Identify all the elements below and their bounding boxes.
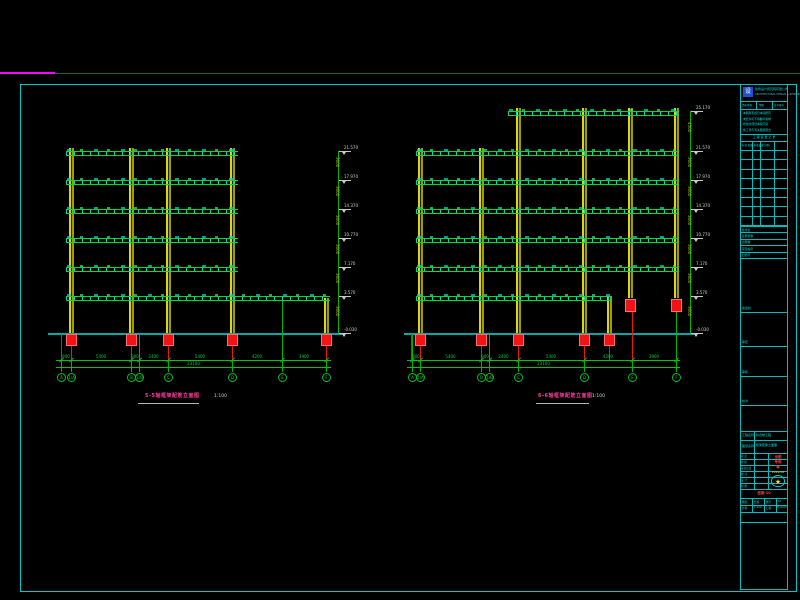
note-line: 修改时须经本院同意 [743,122,768,126]
approval-box-label: 审核 [742,370,748,374]
sheet-no-label: 图号 [766,500,771,504]
cert-number: 证书编号 [774,103,784,107]
note-line: 本图所有权归本院所有 [743,111,771,115]
scale-value: 1:100 [754,506,761,509]
scale-label: 比例 [742,506,747,510]
title-block-divider [764,498,765,512]
approval-box-label: 校对 [742,399,748,403]
project-name-value: 综合楼工程 [756,433,771,437]
title-block-divider [740,206,788,207]
title-block-divider [752,498,753,512]
sign-row-label: 项目编号 [742,247,753,251]
title-block-divider [740,159,788,160]
date-label: 日期 [766,506,771,510]
title-block-divider [740,376,788,377]
staff-row-label: 制 图 [741,484,747,488]
project-name-label: 工程名称 [742,433,754,437]
title-block-divider [740,141,788,142]
title-block-divider [740,109,788,110]
registration-seal-badge: ★ [771,475,785,487]
staff-row-label: 设 计 [741,478,747,482]
company-name-en: ARCHITECTURAL DESIGN & RESEARCH INSTITUT… [755,93,800,96]
title-block-divider [776,498,777,512]
title-block-divider [756,101,757,109]
staff-row-label: 专业负责 [741,466,751,470]
title-block-divider [740,440,788,441]
title-block-divider [740,150,788,151]
cert-grade: 甲级 [759,103,764,107]
cad-sheet-canvas: 9005400900240054004200390023100A1/AB1/BC… [0,0,800,600]
title-block-divider [772,101,773,109]
title-block-divider [740,216,788,217]
title-block-divider [740,346,788,347]
title-block-divider [740,312,788,313]
title-block-divider [740,512,788,513]
staff-row-label: 审 定 [741,454,747,458]
company-name: 建筑设计研究院有限公司 [755,87,788,91]
sign-row-label: 会签栏 [742,228,750,232]
sign-row-label: 归档号 [742,253,750,257]
note-line: 施工须与有关图纸配合 [743,128,771,132]
title-block-divider [740,169,788,170]
title-block-divider [740,489,788,490]
revision-table-title: 工 程 变 更 记 录 [753,135,776,139]
approval-box-label: 审定 [742,340,748,344]
staff-row-label: 校 对 [741,472,747,476]
title-block-divider [740,197,788,198]
sheet-type-label: 图别 [742,500,747,504]
sign-row-label: 注册师章 [742,234,753,238]
title-block-divider [760,141,761,226]
drawing-number-red: 结施-10 [757,491,770,496]
title-block-divider [740,225,788,226]
date-value: 2019.06 [776,506,787,509]
sheet-no-value: 10 [778,500,781,503]
sign-row-label: 出图章 [742,240,750,244]
revision-table-columns: 标记 处数 修改依据 日期 [742,143,769,147]
title-block-divider [740,178,788,179]
title-block-divider [740,522,788,523]
note-line: 未经许可不得翻印复制 [743,117,771,121]
stamp-date: 2019.06 [772,470,784,474]
title-block-divider [740,431,788,432]
approval-box-label: 会签栏 [742,306,751,310]
cert-label: 资质等级 [742,103,752,107]
company-logo: 设 [743,87,753,97]
title-block-divider [740,258,788,259]
title-block-divider [740,405,788,406]
sheet-name-value: 框架配筋立面图 [756,443,777,447]
title-block-divider [740,232,788,233]
title-block-divider [740,453,788,454]
title-block-divider [774,141,775,226]
sheet-type-value: 结施 [754,500,759,504]
title-block-divider [754,431,755,453]
sheet-name-label: 图纸名称 [742,444,754,448]
title-block-divider [740,101,788,102]
title-block: 设建筑设计研究院有限公司ARCHITECTURAL DESIGN & RESEA… [0,0,800,600]
title-block-divider [752,141,753,226]
title-block-divider [740,188,788,189]
staff-row-label: 审 核 [741,460,747,464]
